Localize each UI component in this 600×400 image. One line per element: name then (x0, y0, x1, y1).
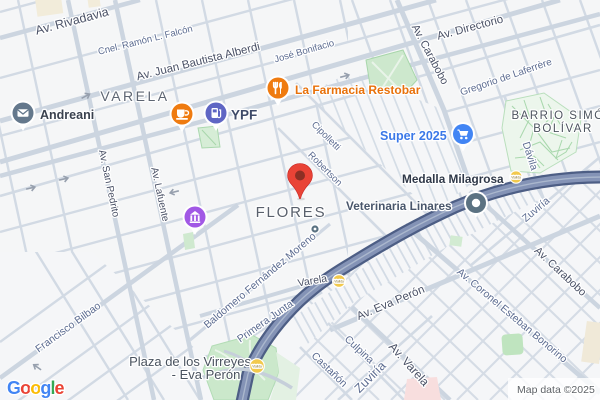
svg-text:YPF: YPF (231, 108, 257, 123)
svg-text:La Farmacia Restobar: La Farmacia Restobar (295, 83, 421, 97)
svg-text:Super 2025: Super 2025 (380, 129, 447, 143)
svg-text:VARELA: VARELA (100, 88, 169, 104)
svg-text:Veterinaria Linares: Veterinaria Linares (346, 199, 452, 213)
svg-text:Vialida: Vialida (252, 364, 262, 368)
svg-text:Andreani: Andreani (40, 108, 94, 122)
svg-text:Vialida: Vialida (334, 279, 344, 283)
svg-text:Google: Google (7, 378, 65, 398)
svg-text:Vialida: Vialida (511, 175, 521, 179)
svg-text:FLORES: FLORES (256, 204, 327, 221)
svg-text:- Eva Perón: - Eva Perón (172, 367, 241, 382)
svg-text:BOLÍVAR: BOLÍVAR (533, 122, 593, 135)
svg-text:Map data ©2025: Map data ©2025 (517, 384, 595, 396)
svg-text:Medalla Milagrosa: Medalla Milagrosa (402, 172, 504, 186)
svg-text:BARRIO SIMÓN: BARRIO SIMÓN (512, 109, 600, 122)
